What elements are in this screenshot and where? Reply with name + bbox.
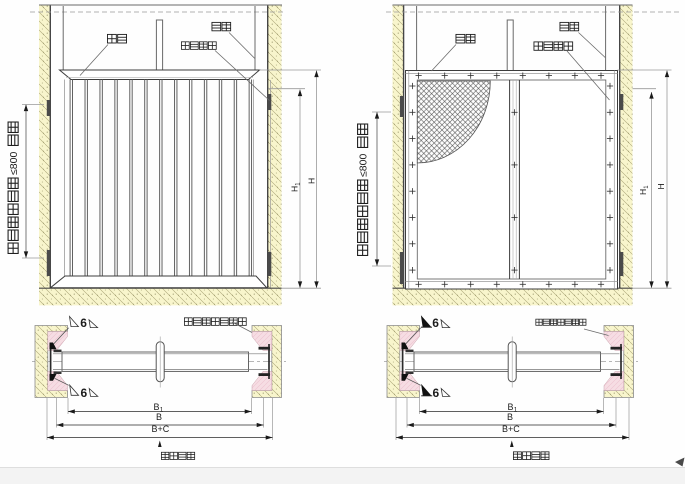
svg-text:H: H [638,189,648,195]
svg-text:6: 6 [81,386,88,400]
svg-text:≤800: ≤800 [8,152,20,175]
svg-text:1: 1 [514,407,518,414]
svg-text:6: 6 [432,316,439,330]
svg-text:H: H [290,186,300,192]
svg-text:H: H [656,183,666,189]
svg-text:B: B [507,412,513,422]
svg-text:6: 6 [80,316,87,330]
svg-text:B+C: B+C [152,424,170,434]
svg-text:≤800: ≤800 [358,154,370,177]
svg-text:6: 6 [433,386,440,400]
svg-text:H: H [307,178,317,184]
svg-text:B: B [154,402,160,412]
svg-text:B: B [156,412,162,422]
svg-text:B: B [508,402,514,412]
svg-text:B+C: B+C [502,424,520,434]
